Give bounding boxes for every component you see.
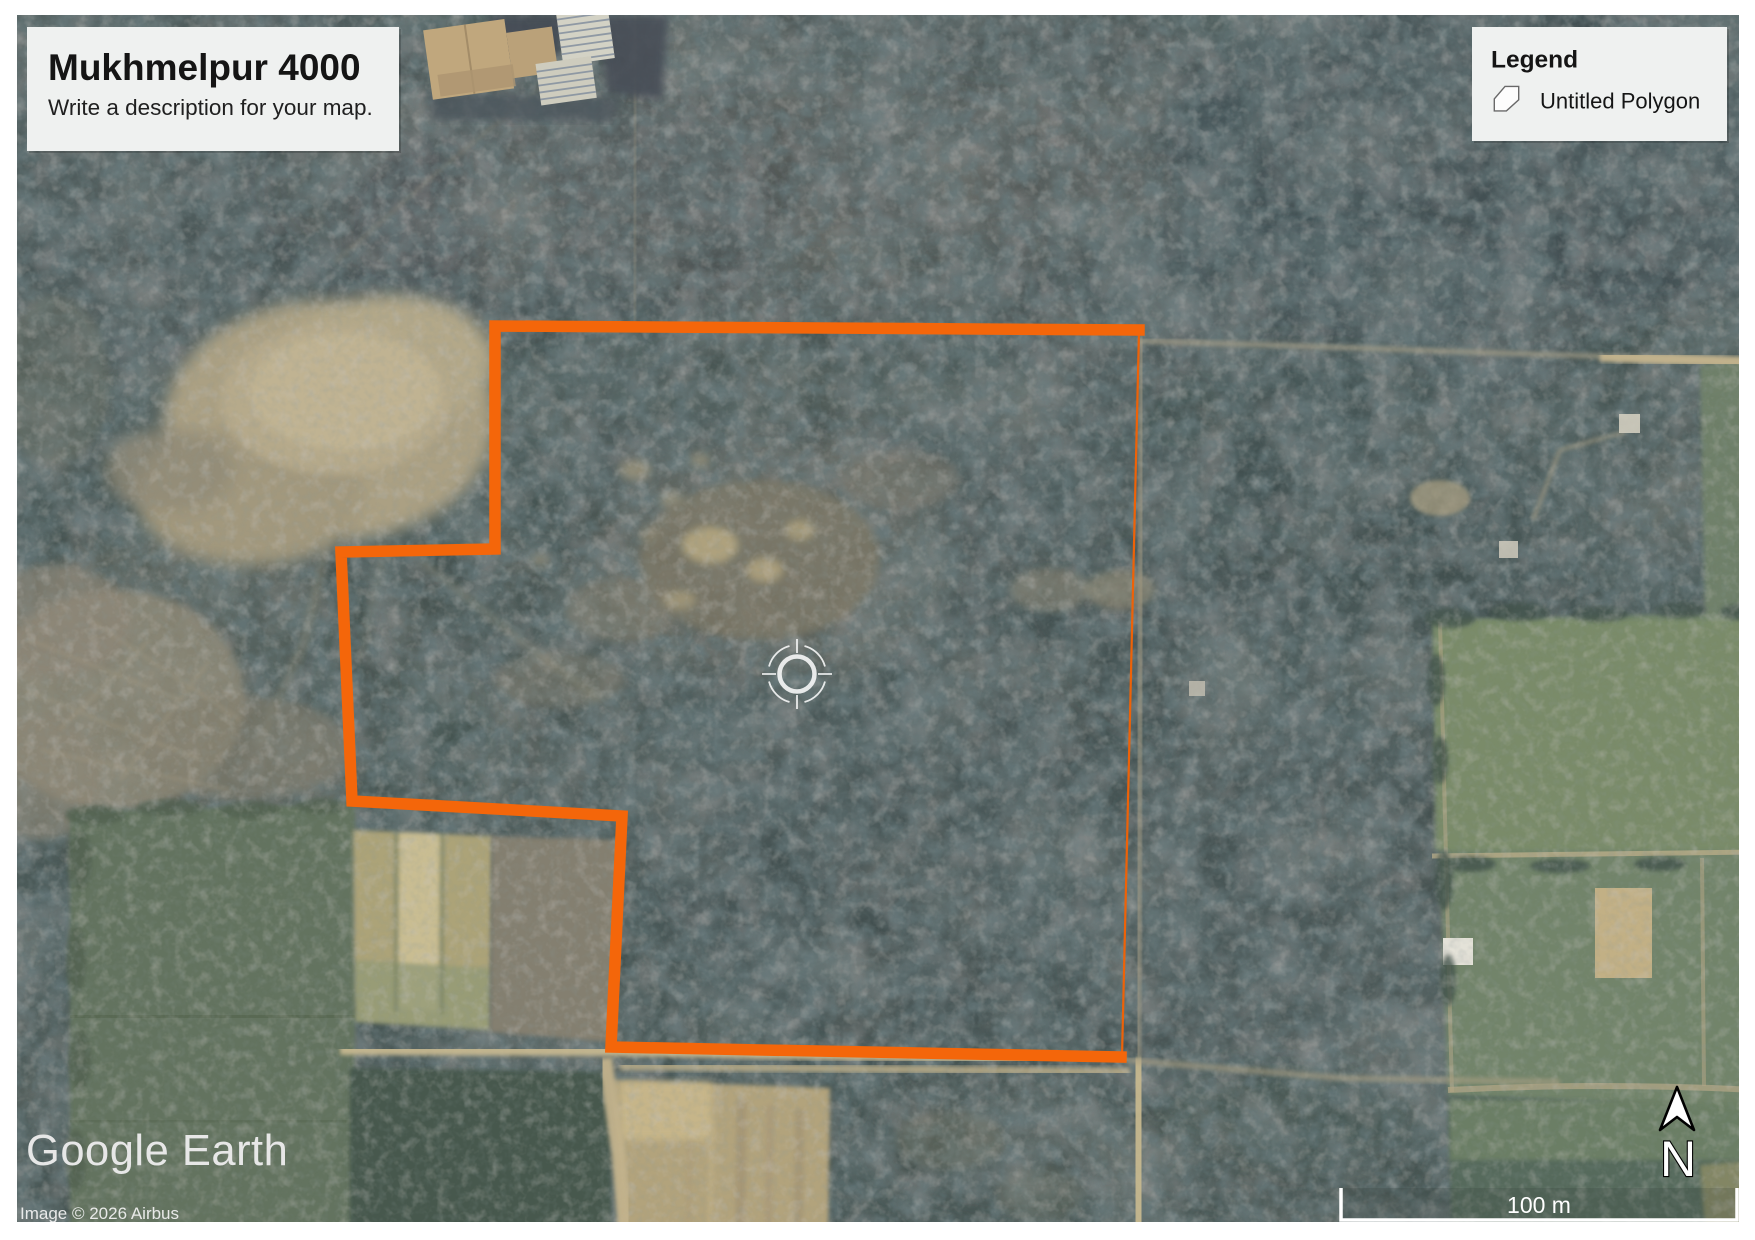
svg-text:Mukhmelpur 4000: Mukhmelpur 4000 (48, 47, 361, 88)
svg-text:Image © 2026 Airbus: Image © 2026 Airbus (20, 1204, 179, 1223)
svg-text:Write a description for your m: Write a description for your map. (48, 95, 373, 120)
svg-text:N: N (1660, 1131, 1696, 1187)
svg-text:Untitled Polygon: Untitled Polygon (1540, 89, 1700, 114)
svg-text:100 m: 100 m (1507, 1192, 1571, 1218)
svg-text:Google Earth: Google Earth (26, 1127, 288, 1175)
svg-text:Legend: Legend (1491, 47, 1578, 74)
